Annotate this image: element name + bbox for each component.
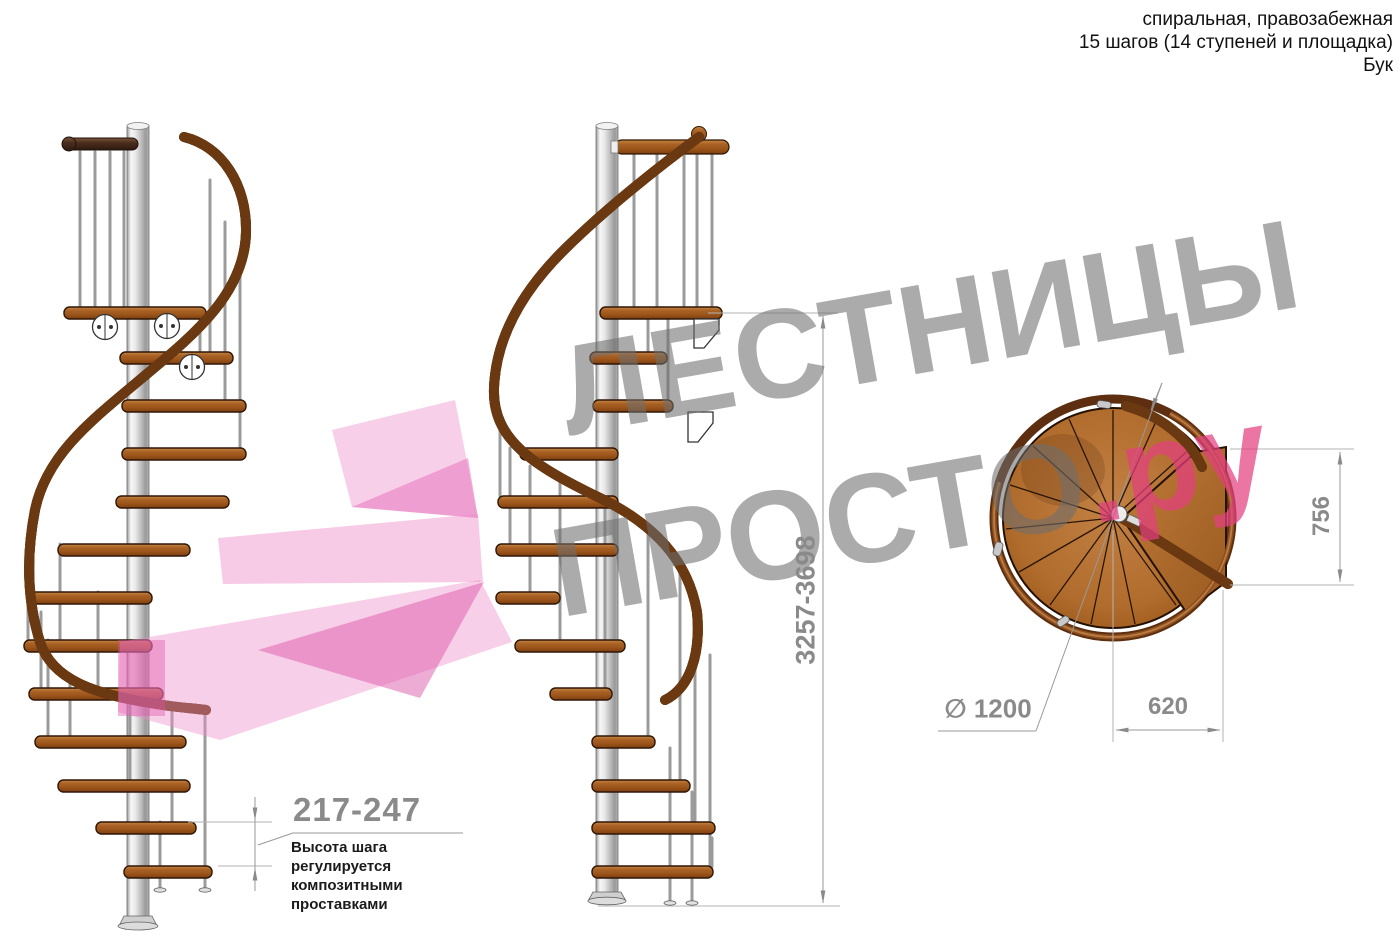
title-steps: 15 шагов (14 ступеней и площадка) — [1079, 31, 1393, 54]
pole-base-plate — [118, 922, 158, 930]
diameter-symbol: ∅ — [944, 694, 966, 724]
baluster-foot — [686, 901, 698, 905]
dimension-total-height: 3257-3698 — [791, 535, 822, 664]
dimension-diameter: ∅ 1200 — [944, 694, 1031, 725]
step-bracket — [694, 319, 719, 348]
title-material: Бук — [1079, 54, 1393, 77]
rail-sleeve — [1097, 400, 1112, 409]
dimension-step-height: 217-247 — [293, 791, 421, 829]
pole-top — [1111, 506, 1127, 522]
rail-connector — [611, 141, 618, 153]
baluster-foot — [199, 888, 211, 892]
pole-top-cap — [596, 123, 618, 130]
title-type: спиральная, правозабежная — [1079, 8, 1393, 31]
step-bracket — [688, 412, 713, 442]
drawing-canvas: ЛЕСТНИЦЫ ПРОСТО.ру спиральная, правозабе… — [0, 0, 1400, 951]
baluster-foot — [154, 888, 166, 892]
staircase-drawing — [0, 0, 1400, 951]
dimension-step-length: 620 — [1148, 693, 1188, 721]
side-view-left — [24, 123, 246, 931]
top-plan-view — [992, 399, 1232, 637]
baluster-foot — [664, 901, 676, 905]
pole-top-cap — [127, 123, 149, 130]
disc-shadow — [1021, 434, 1105, 506]
step-height-annotation: Высота шага регулируется композитными пр… — [291, 838, 403, 914]
dimension-platform-width: 756 — [1308, 496, 1336, 536]
title-block: спиральная, правозабежная 15 шагов (14 с… — [1079, 8, 1393, 77]
landing-rail-cap — [62, 137, 76, 151]
pole-base-plate — [588, 897, 626, 905]
side-view-right — [494, 123, 729, 906]
diameter-value: 1200 — [974, 694, 1032, 724]
